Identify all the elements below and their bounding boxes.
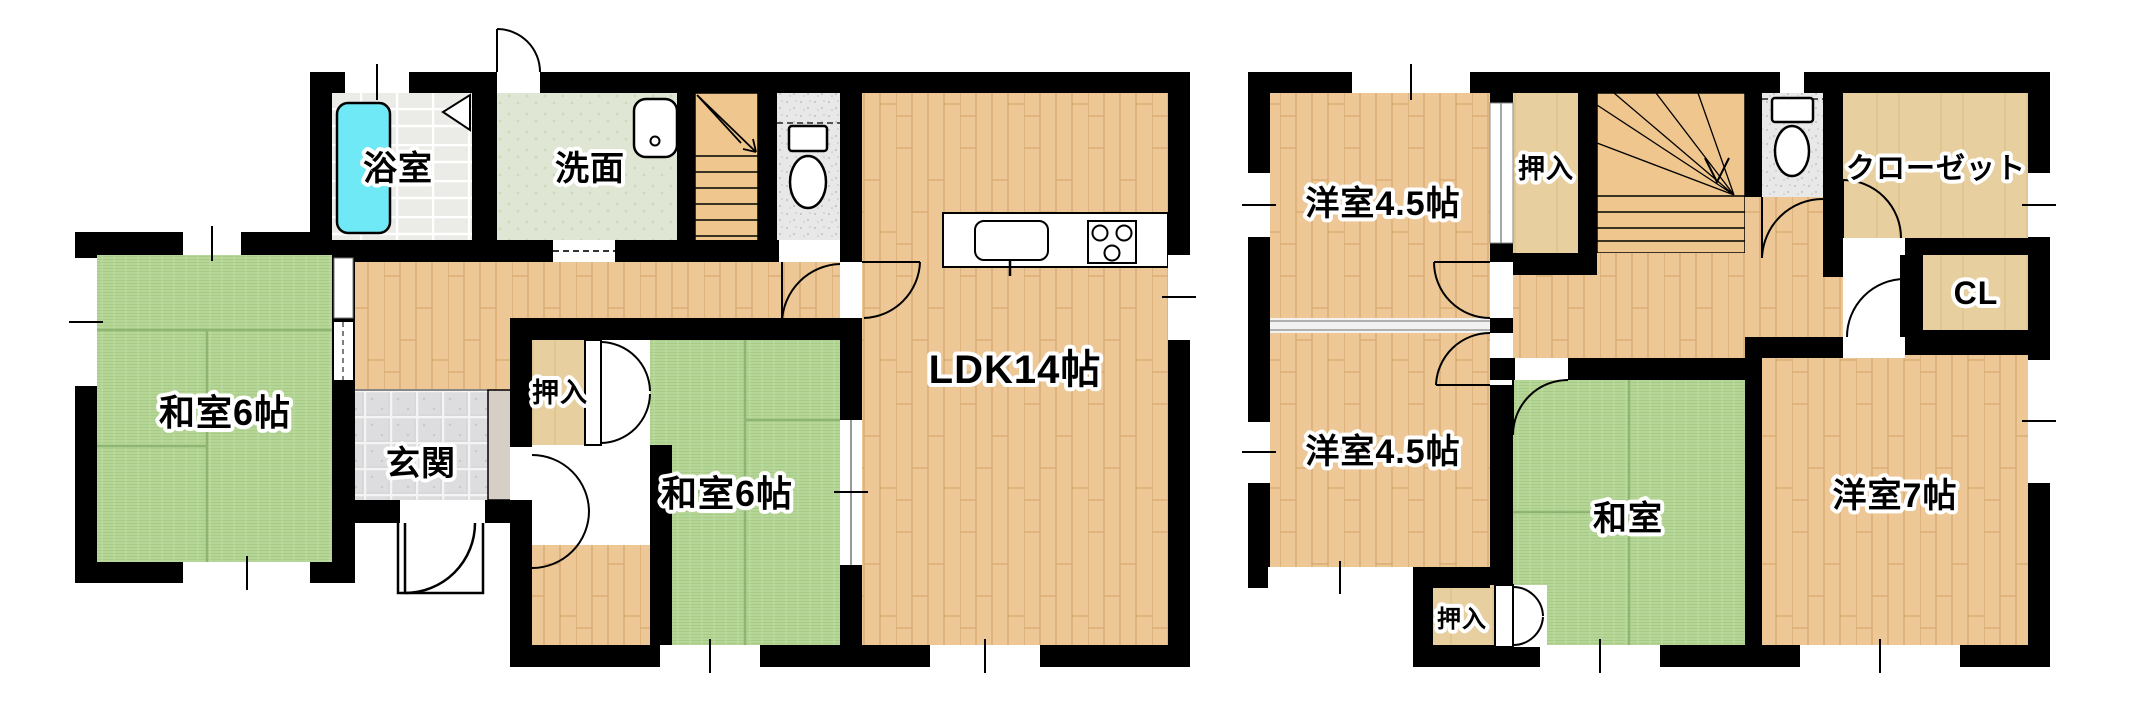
- wash-basin-drain: [651, 137, 660, 146]
- oshiire-2f-bifold-door-icon: [1495, 585, 1547, 647]
- label-tatami2: 和室6帖: [661, 473, 793, 514]
- label-walkin-closet: クローゼット: [1846, 152, 2026, 185]
- floor-plan-svg: 浴室 洗面 和室6帖 玄関 押入 和室6帖 LDK14帖 洋室4.5帖 押入 ク…: [0, 0, 2150, 703]
- back-door-icon: [497, 29, 540, 72]
- stairs-down-icon: [1597, 93, 1745, 253]
- corridor-1f: [532, 445, 650, 545]
- corridor-1f-wood: [532, 545, 650, 645]
- western7-door-icon: [1847, 279, 1905, 337]
- label-tatami1: 和室6帖: [159, 392, 291, 433]
- shoe-cabinet: [488, 390, 513, 500]
- label-oshiire-1f: 押入: [532, 378, 588, 408]
- label-western-top: 洋室4.5帖: [1305, 184, 1460, 223]
- label-bath: 浴室: [363, 149, 433, 188]
- label-cl: CL: [1954, 275, 1999, 311]
- label-western-bottom: 洋室4.5帖: [1305, 432, 1460, 471]
- label-entrance: 玄関: [386, 445, 456, 483]
- label-western7: 洋室7帖: [1833, 476, 1958, 515]
- floor-plan-page: 浴室 洗面 和室6帖 玄関 押入 和室6帖 LDK14帖 洋室4.5帖 押入 ク…: [0, 0, 2150, 703]
- label-tatami-2f: 和室: [1593, 499, 1663, 538]
- label-oshiire-2f-top: 押入: [1518, 154, 1574, 184]
- label-washroom: 洗面: [555, 150, 625, 188]
- kitchen-counter: [943, 213, 1168, 276]
- wash-basin-icon: [634, 99, 677, 157]
- hallway-1f-entrance-side: [332, 318, 510, 390]
- label-oshiire-2f-bottom: 押入: [1437, 606, 1487, 633]
- oshiire-1f-bifold-door-icon: [585, 340, 650, 445]
- label-ldk: LDK14帖: [929, 348, 1102, 392]
- kitchen-sink-icon: [975, 221, 1048, 260]
